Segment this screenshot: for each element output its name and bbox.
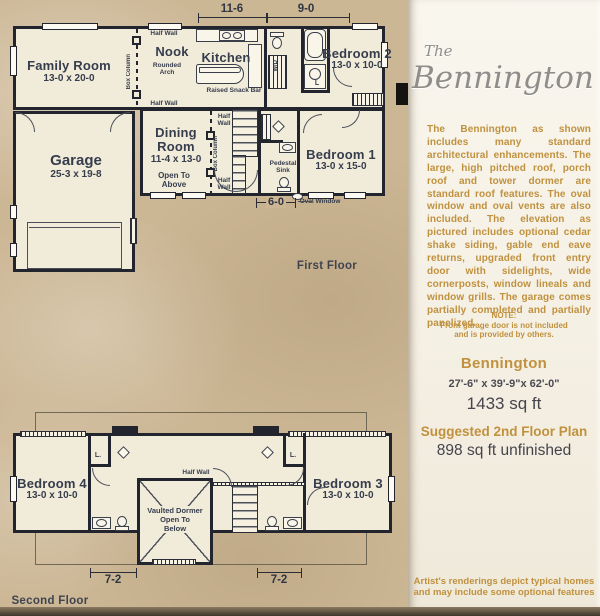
- sink-bowl: [282, 144, 293, 151]
- half-wall-label: Half Wall: [150, 100, 177, 107]
- closet-wall: [283, 433, 286, 466]
- garage-door-line: [29, 227, 120, 228]
- sink-bowl: [222, 32, 231, 39]
- disclaimer-line-2: and may include some optional features: [408, 587, 600, 598]
- note-line-1: Front garage door is not included: [408, 321, 600, 330]
- dormer-window: [152, 559, 196, 565]
- dimension-line: [198, 17, 267, 18]
- closet-wall: [327, 29, 330, 93]
- brand-prefix: The: [424, 42, 453, 60]
- window: [150, 192, 176, 199]
- linen-closet-label: L.: [290, 452, 296, 459]
- snack-bar-label: Raised Snack Bar: [207, 87, 262, 94]
- dimension-7-2-left: 7-2: [105, 574, 122, 586]
- window: [182, 192, 206, 199]
- first-floor-title: First Floor: [297, 260, 357, 272]
- closet-wall: [108, 433, 111, 466]
- linen-closet-label: L: [315, 80, 319, 87]
- bathtub-inner: [307, 32, 323, 58]
- sink-bowl: [287, 519, 298, 527]
- garage-label: Garage: [50, 152, 102, 169]
- garage-door: [27, 222, 122, 269]
- garage-size: 25-3 x 19-8: [50, 169, 101, 180]
- dimension-11-6: 11-6: [221, 3, 243, 15]
- rounded-arch-label-1: Rounded: [153, 62, 181, 69]
- half-wall-label-2: Wall: [217, 184, 230, 191]
- vaulted-dormer-label-1: Vaulted Dormer: [145, 506, 204, 515]
- second-floor-title: Second Floor: [11, 595, 88, 607]
- bedroom3-label: Bedroom 3: [313, 476, 383, 491]
- pedestal-sink-label-2: Sink: [276, 167, 290, 174]
- window: [148, 23, 182, 30]
- bedroom4-label: Bedroom 4: [17, 476, 87, 491]
- panel-edge-tab: [396, 83, 408, 105]
- pedestal-sink-label-1: Pedestal: [270, 160, 297, 167]
- note-line-2: and is provided by others.: [408, 330, 600, 339]
- oval-window-leader: [298, 201, 312, 202]
- dimension-line: [257, 572, 302, 573]
- open-to-above-2: Above: [162, 180, 186, 189]
- brand-name: Bennington: [412, 60, 594, 96]
- rounded-arch-label-2: Arch: [160, 69, 175, 76]
- dimension-9-0: 9-0: [298, 3, 315, 15]
- box-column-marker: [132, 36, 141, 45]
- bedroom2-closet: [352, 93, 384, 106]
- half-wall-label-1: Half: [218, 113, 230, 120]
- bedroom1-size: 13-0 x 15-0: [315, 161, 366, 172]
- window: [388, 476, 395, 502]
- closet-wall: [283, 464, 306, 467]
- dormer-bump: [112, 426, 138, 435]
- bottom-border-band: [0, 607, 600, 616]
- staircase: [232, 109, 258, 157]
- dimension-line: [90, 572, 137, 573]
- toilet-tank: [277, 187, 291, 192]
- shower: [261, 114, 271, 140]
- bed1-wall: [297, 111, 300, 196]
- dimension-6-0: 6-0: [266, 196, 286, 208]
- garage-window: [10, 243, 17, 257]
- vaulted-dormer-label-3: Below: [162, 524, 188, 533]
- bedroom2-label: Bedroom 2: [322, 46, 392, 61]
- half-wall-label-2: Wall: [217, 120, 230, 127]
- vanity-sink: [309, 68, 321, 80]
- dining-room-label-2: Room: [157, 139, 195, 154]
- info-panel: The Bennington The Bennington as shown i…: [408, 0, 600, 608]
- dining-room-label-1: Dining: [155, 125, 197, 140]
- closet-wall: [88, 464, 111, 467]
- half-wall-label: Half Wall: [182, 469, 209, 476]
- kitchen-label: Kitchen: [201, 50, 250, 65]
- model-dimensions: 27'-6" x 39'-9"x 62'-0": [408, 378, 600, 390]
- family-room-size: 13-0 x 20-0: [43, 73, 94, 84]
- bedroom3-size: 13-0 x 10-0: [322, 490, 373, 501]
- closet-wall: [301, 90, 330, 93]
- toilet-bowl: [272, 37, 282, 49]
- vaulted-dormer-label-2: Open To: [158, 515, 192, 524]
- bedroom4-size: 13-0 x 10-0: [26, 490, 77, 501]
- note-label: NOTE:: [408, 311, 600, 320]
- dimension-line: [267, 17, 350, 18]
- bedroom2-size: 13-0 x 10-0: [331, 60, 382, 71]
- suggested-plan-title: Suggested 2nd Floor Plan: [408, 424, 600, 439]
- window: [344, 192, 366, 199]
- kitchen-hall-wall: [264, 29, 267, 107]
- toilet-tank: [115, 526, 129, 531]
- box-column-line: [210, 111, 212, 193]
- washer-dryer-label: W/D: [273, 60, 279, 72]
- staircase: [232, 485, 258, 533]
- snack-bar-inner: [199, 67, 241, 73]
- second-floor-area: 898 sq ft unfinished: [408, 442, 600, 460]
- linen-closet-label: L.: [95, 452, 101, 459]
- box-column-marker: [132, 90, 141, 99]
- box-column-label: Box Column: [126, 54, 132, 89]
- sink-bowl: [233, 32, 242, 39]
- box-column-label: Box Column: [213, 136, 219, 171]
- garage-window: [10, 205, 17, 219]
- garage-vent: [130, 218, 137, 244]
- half-wall-label-1: Half: [218, 177, 230, 184]
- dormer-bump: [253, 426, 279, 435]
- disclaimer-line-1: Artist's renderings depict typical homes: [408, 576, 600, 587]
- dining-room-size: 11-4 x 13-0: [151, 154, 202, 165]
- model-name: Bennington: [408, 355, 600, 372]
- window: [42, 23, 98, 30]
- window-band: [20, 431, 86, 437]
- bedroom1-label: Bedroom 1: [306, 147, 376, 162]
- bedroom4-wall: [88, 433, 91, 533]
- window: [10, 476, 17, 502]
- nook-label: Nook: [155, 44, 188, 59]
- window: [352, 23, 378, 30]
- main-area: 1433 sq ft: [408, 394, 600, 414]
- family-room-label: Family Room: [27, 58, 111, 73]
- description-text: The Bennington as shown includes many st…: [427, 124, 591, 331]
- brochure-page: 11-6 9-0: [0, 0, 600, 616]
- dimension-7-2-right: 7-2: [271, 574, 288, 586]
- sink-bowl: [96, 519, 107, 527]
- half-wall-label: Half Wall: [150, 30, 177, 37]
- window: [10, 46, 17, 76]
- toilet-tank: [265, 526, 279, 531]
- open-to-above-1: Open To: [158, 171, 190, 180]
